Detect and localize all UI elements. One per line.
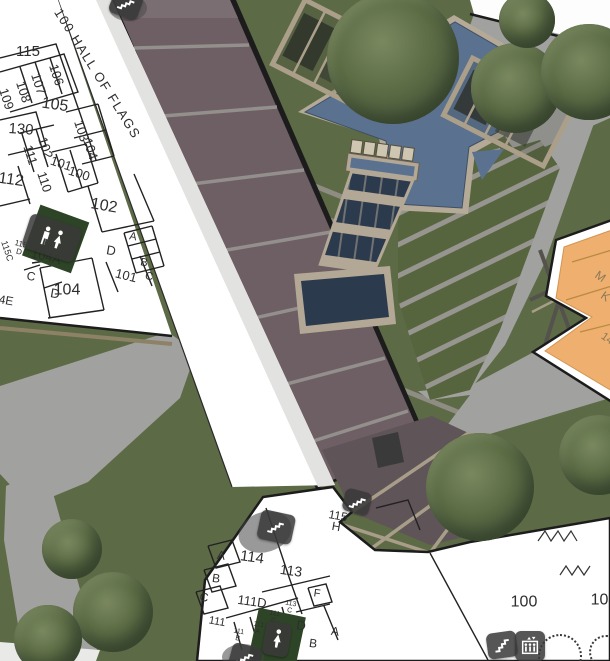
tree	[426, 433, 534, 541]
cascade-basin	[294, 266, 396, 334]
tree	[73, 572, 153, 652]
tree	[42, 519, 102, 579]
map-canvas[interactable]: 1151061071081091051301031041021111011121…	[0, 0, 610, 661]
